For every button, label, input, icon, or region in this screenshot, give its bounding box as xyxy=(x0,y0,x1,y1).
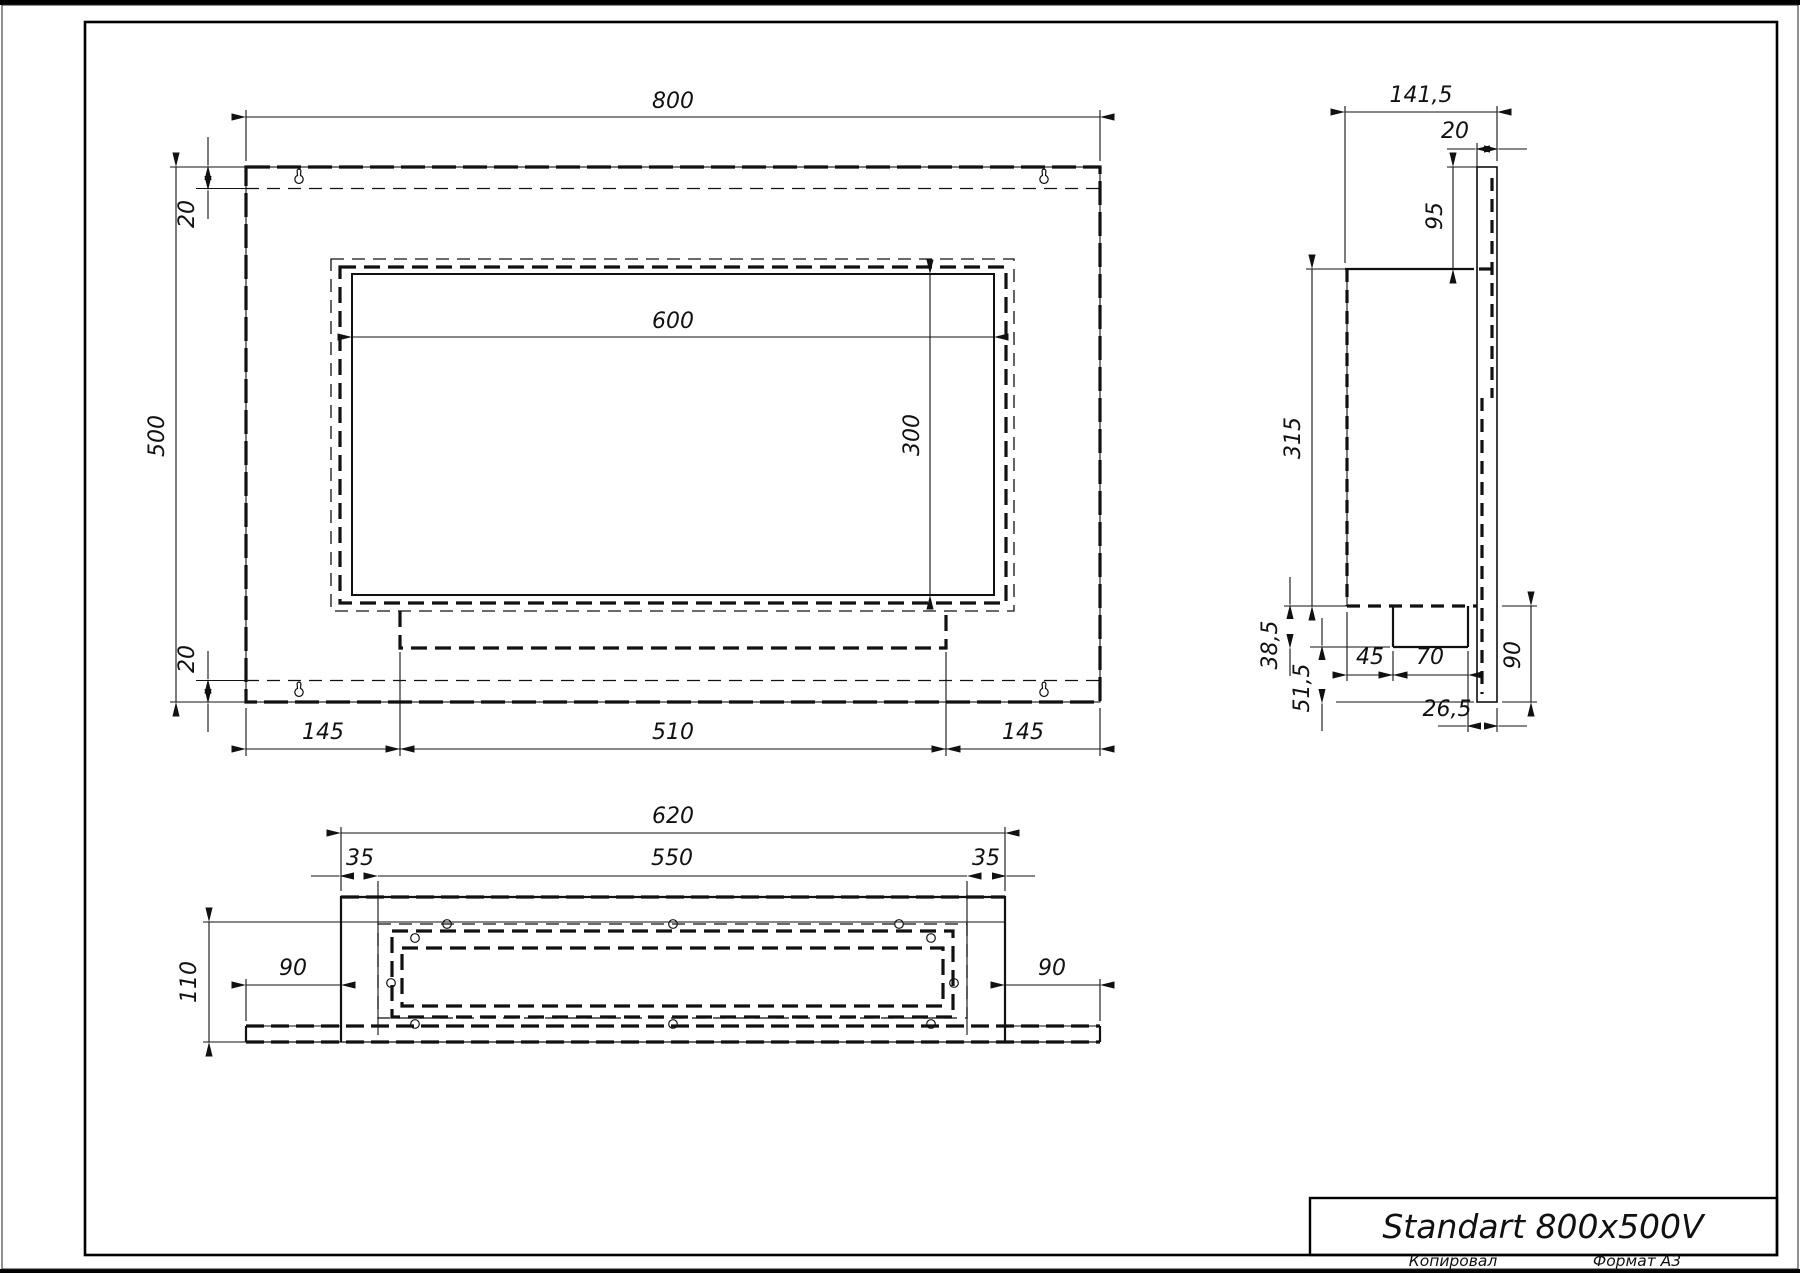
drawing-frame xyxy=(85,22,1777,1255)
dim-front-left-margin: 145 xyxy=(302,720,344,745)
dim-bottom-right-wing: 90 xyxy=(1038,956,1066,981)
keyhole-icon xyxy=(1040,169,1048,183)
title-model: Standart 800x500V xyxy=(1382,1207,1706,1246)
dim-front-width: 800 xyxy=(652,89,694,114)
dim-side-plate-thickness: 20 xyxy=(1441,119,1469,144)
title-block: Standart 800x500V xyxy=(1310,1198,1777,1255)
dim-side-lower-height: 90 xyxy=(1501,641,1526,669)
dim-front-right-margin: 145 xyxy=(1002,720,1044,745)
dim-bottom-depth: 110 xyxy=(177,961,202,1003)
drawing-sheet: 800 20 500 20 600 300 145 510 145 xyxy=(0,0,1800,1273)
dim-side-tray-depth: 38,5 xyxy=(1258,621,1283,670)
side-view-dimensions: 141,5 20 95 315 38,5 51,5 45 70 xyxy=(1258,83,1537,732)
front-view xyxy=(246,167,1100,702)
dim-side-top-offset: 95 xyxy=(1423,202,1448,230)
format-label: Формат А3 xyxy=(1593,1252,1681,1270)
dim-side-total-depth: 141,5 xyxy=(1390,83,1453,108)
dim-bottom-left-margin: 35 xyxy=(346,846,374,871)
dim-bottom-right-margin: 35 xyxy=(972,846,1000,871)
dim-bottom-width: 620 xyxy=(652,804,694,829)
bottom-view xyxy=(246,897,1100,1042)
dim-side-body-height: 315 xyxy=(1281,417,1306,459)
drawing-canvas: 800 20 500 20 600 300 145 510 145 xyxy=(0,0,1800,1273)
dim-bottom-left-wing: 90 xyxy=(279,956,307,981)
burner-box-front xyxy=(400,611,946,648)
hole-icons xyxy=(387,920,959,1029)
dim-front-window-height: 300 xyxy=(900,414,925,456)
dim-side-tray-inset: 45 xyxy=(1356,645,1384,670)
copied-label: Копировал xyxy=(1409,1252,1498,1270)
dim-front-height: 500 xyxy=(145,415,170,457)
dim-side-lip: 26,5 xyxy=(1423,697,1472,722)
dim-side-bottom-offset: 51,5 xyxy=(1290,664,1315,713)
dim-front-burner-width: 510 xyxy=(652,720,694,745)
dim-front-window-width: 600 xyxy=(652,309,694,334)
dim-side-tray-width: 70 xyxy=(1416,645,1444,670)
keyhole-icon xyxy=(295,169,303,183)
keyhole-icon xyxy=(295,682,303,696)
dim-front-bottom-flange: 20 xyxy=(175,645,200,673)
dim-bottom-insert-width: 550 xyxy=(651,846,693,871)
side-view xyxy=(1345,143,1497,702)
page-border xyxy=(0,0,1800,1273)
dim-front-top-flange: 20 xyxy=(175,200,200,228)
keyhole-icon xyxy=(1040,682,1048,696)
